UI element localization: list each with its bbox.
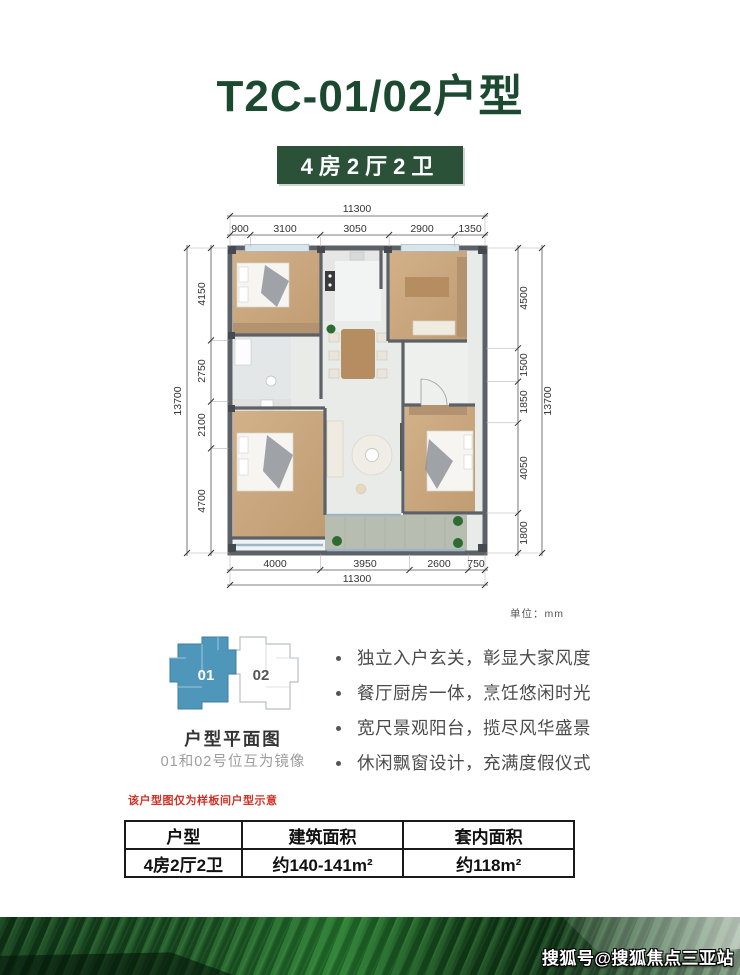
cell-unit-type: 4房2厅2卫: [125, 849, 242, 877]
feature-text: 餐厅厨房一体，烹饪悠闲时光: [357, 683, 591, 703]
closet-strip: [233, 323, 321, 335]
key-diagram-note: 01和02号位互为镜像: [110, 750, 356, 771]
unit-02-label: 02: [253, 667, 270, 684]
feature-list: 独立入户玄关，彰显大家风度 餐厅厨房一体，烹饪悠闲时光 宽尺景观阳台，揽尽风华盛…: [330, 641, 620, 781]
building-key-diagram: 01 02: [166, 632, 302, 716]
page-title: T2C-01/02户型: [0, 60, 740, 124]
balcony-floor: [325, 515, 467, 551]
dim-bottom-total: 11300: [343, 573, 372, 585]
dim-left-0: 4150: [196, 282, 208, 306]
room-config-badge: 4房2厅2卫: [277, 146, 464, 184]
dim-top-1: 3100: [273, 223, 297, 235]
plant: [453, 538, 463, 548]
header-construction-area: 建筑面积: [242, 821, 404, 849]
unit-note: 单位：mm: [510, 607, 564, 620]
dim-top-total: 11300: [343, 203, 372, 215]
coffee-table: [366, 449, 379, 462]
dim-right-2: 1850: [518, 390, 530, 414]
wardrobe-strip: [457, 257, 467, 337]
plant: [453, 516, 463, 526]
dim-left-2: 2100: [196, 413, 208, 437]
dim-right-4: 1800: [518, 521, 530, 545]
dim-bottom-2: 2600: [427, 558, 451, 570]
cell-interior-area: 约118m²: [403, 849, 574, 877]
bullet-icon: [336, 761, 341, 766]
watermark: 搜狐号@搜狐焦点三亚站: [542, 944, 734, 969]
room-config-badge-wrap: 4房2厅2卫: [0, 146, 740, 184]
desk: [405, 277, 449, 297]
entry-floor: [402, 341, 468, 405]
bullet-icon: [336, 691, 341, 696]
toilet: [266, 376, 276, 386]
dim-top-3: 2900: [410, 223, 434, 235]
dim-top-4: 1350: [458, 223, 482, 235]
dim-bottom-3: 750: [467, 558, 485, 570]
bullet-icon: [336, 656, 341, 661]
dim-right-3: 4050: [518, 456, 530, 480]
spec-table-data-row: 4房2厅2卫 约140-141m² 约118m²: [125, 849, 574, 877]
dim-top-0: 900: [231, 223, 249, 235]
dim-left-3: 4700: [196, 489, 208, 513]
dim-left-total: 13700: [172, 386, 184, 415]
header-interior-area: 套内面积: [403, 821, 574, 849]
spec-table: 户型 建筑面积 套内面积 4房2厅2卫 约140-141m² 约118m²: [124, 820, 575, 878]
feature-text: 休闲飘窗设计，充满度假仪式: [357, 753, 591, 773]
disclaimer-note: 该户型图仅为样板间户型示意: [128, 792, 278, 808]
study-sofa: [413, 321, 455, 335]
key-diagram-caption: 户型平面图: [140, 726, 326, 751]
feature-item: 餐厅厨房一体，烹饪悠闲时光: [330, 676, 620, 711]
dim-right-1: 1500: [518, 353, 530, 377]
dim-right-total: 13700: [542, 386, 554, 415]
plant: [332, 536, 342, 546]
feature-item: 宽尺景观阳台，揽尽风华盛景: [330, 711, 620, 746]
dim-top-2: 3050: [343, 223, 367, 235]
dim-bottom-1: 3950: [353, 558, 377, 570]
dim-left-1: 2750: [196, 359, 208, 383]
sofa: [327, 421, 343, 477]
sink: [350, 252, 364, 260]
feature-text: 宽尺景观阳台，揽尽风华盛景: [357, 718, 591, 738]
dim-bottom-0: 4000: [263, 558, 287, 570]
feature-item: 独立入户玄关，彰显大家风度: [330, 641, 620, 676]
spec-table-header-row: 户型 建筑面积 套内面积: [125, 821, 574, 849]
dining-table: [341, 329, 375, 379]
header-unit-type: 户型: [125, 821, 242, 849]
bullet-icon: [336, 726, 341, 731]
cell-construction-area: 约140-141m²: [242, 849, 404, 877]
feature-text: 独立入户玄关，彰显大家风度: [357, 648, 591, 668]
dim-right-0: 4500: [518, 286, 530, 310]
feature-item: 休闲飘窗设计，充满度假仪式: [330, 746, 620, 781]
shower: [235, 339, 251, 365]
floor-plan-image: 11300 900 3100 3050 2900 1350 4000 3950 …: [165, 193, 585, 625]
stove: [325, 271, 335, 291]
plant: [327, 325, 336, 334]
unit-01-label: 01: [198, 667, 215, 684]
